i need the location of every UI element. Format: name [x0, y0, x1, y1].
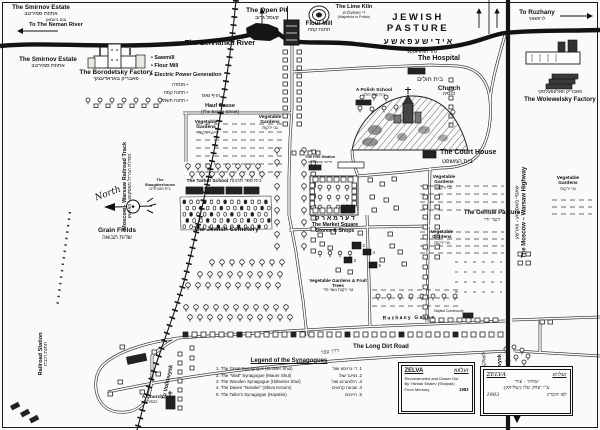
credit-title-en: ZELVA	[405, 368, 424, 374]
corner-decor	[10, 402, 39, 424]
credit-box-he: ZELVA זעלווא שוחזר - צויר ע"י יצחק שלו (…	[480, 366, 573, 416]
label-ruzhany-gasse: Ruzhany Gasse	[380, 315, 438, 322]
label-flour-mill: Flour Mill תחנת קמח	[296, 21, 342, 33]
label-smirnov-estate-2: The Smirnov Estate אחוזת סמירנוב	[12, 56, 84, 69]
label-vegetable-gardens-1: Vegetable Gardens גני ירקות	[188, 120, 224, 136]
label-wolewelsky-factory: פאבריק וואלעוועלסקי The Wolewelsky Facto…	[522, 90, 598, 103]
legend-item: 5. The Tailor's Synagogue (Hayatim) 5. ח…	[216, 392, 362, 398]
legend-title: Legend of the Synagogues	[216, 358, 362, 365]
legend-synagogues: Legend of the Synagogues 1. The Great Sy…	[216, 358, 362, 398]
label-hospital-he: בית חולים	[400, 76, 460, 83]
wolewelsky-factory-icon	[526, 40, 580, 89]
label-hauf-gasse-he: הויף גאס	[190, 94, 232, 99]
svg-text:4: 4	[373, 250, 376, 255]
svg-text:2: 2	[363, 243, 366, 248]
label-jewish-cemetery: The Jewish Cemetery	[182, 226, 270, 233]
svg-text:5: 5	[379, 263, 382, 268]
label-hospital: The Hospital	[408, 55, 470, 63]
label-railroad-station: Railroad Station תחנת רכבת	[38, 316, 50, 392]
label-zelvianka-river: The Zelvianka River	[182, 39, 258, 48]
label-church: Church כנסיה	[431, 85, 467, 98]
svg-text:1: 1	[357, 206, 360, 211]
label-market-square: The Market Square Stores & Shops	[307, 223, 363, 235]
label-slaughterhouse: The Slaughterhouse בית מטבחיים	[142, 178, 178, 191]
label-highway: שאסיי מאסקווע - ווארשע The Moscow – Wars…	[516, 142, 529, 282]
label-hauf-gasse: Hauf Gasse (The Estate Street)	[188, 103, 252, 114]
label-to-ruzhany: To Ruzhany לרוזשאני	[512, 9, 562, 22]
label-tarbut-school: The Tarbut School בית ספר תרבות	[180, 179, 268, 184]
label-grain-fields: Grain Fields שדות תבואה	[92, 227, 142, 241]
label-court-house: The Court House	[440, 149, 510, 157]
label-baptist-community: Baptist Community	[434, 309, 464, 313]
label-to-neman-river: צום ניעמאן To The Neman River	[20, 17, 92, 28]
label-vegetable-gardens-2: Vegetable Gardens גני ירקות	[252, 115, 288, 131]
label-vegetable-gardens-3: Vegetable Gardens גני ירקות	[426, 175, 462, 191]
label-factory-facilities-he: מנסרה • תחנת קמח • תחנת חשמל •	[146, 81, 188, 104]
label-polish-school: A Polish School בית ספר פולני	[348, 88, 400, 98]
label-vegetable-gardens-5: Vegetable Gardens גני ירקות	[550, 176, 586, 192]
label-long-dirt-road: The Long Dirt Road	[344, 344, 418, 351]
label-fire-station: The Fire Station פייער קאמאנדע	[301, 155, 339, 164]
label-smirnov-estate-1: The Smirnov Estate אחוזת סמירנוב	[8, 4, 74, 17]
borodetsky-factory-icon	[88, 44, 145, 68]
label-court-house-he: בית המשפט	[442, 159, 502, 166]
label-jewish-pasture: JEWISH PASTURE א י ד י ש ע פ א ש ע	[366, 13, 470, 46]
credit-box-en: ZELVA זעלווא Reconstructed and Drawn Out…	[398, 362, 475, 414]
label-veg-fruit: Vegetable Gardens & Fruit Trees גני ירקו…	[304, 278, 372, 293]
label-vegetable-gardens-4: Vegetable Gardens גני ירקות	[424, 230, 460, 246]
label-open-pit: The Open Pit קעסל גרוב	[236, 7, 298, 21]
svg-text:3: 3	[354, 258, 357, 263]
label-factory-facilities: • Sawmill • Flour Mill • Electric Power …	[151, 54, 233, 79]
zelva-memory-map: 12345	[0, 0, 600, 430]
credit-title-he: זעלווא	[454, 368, 468, 374]
